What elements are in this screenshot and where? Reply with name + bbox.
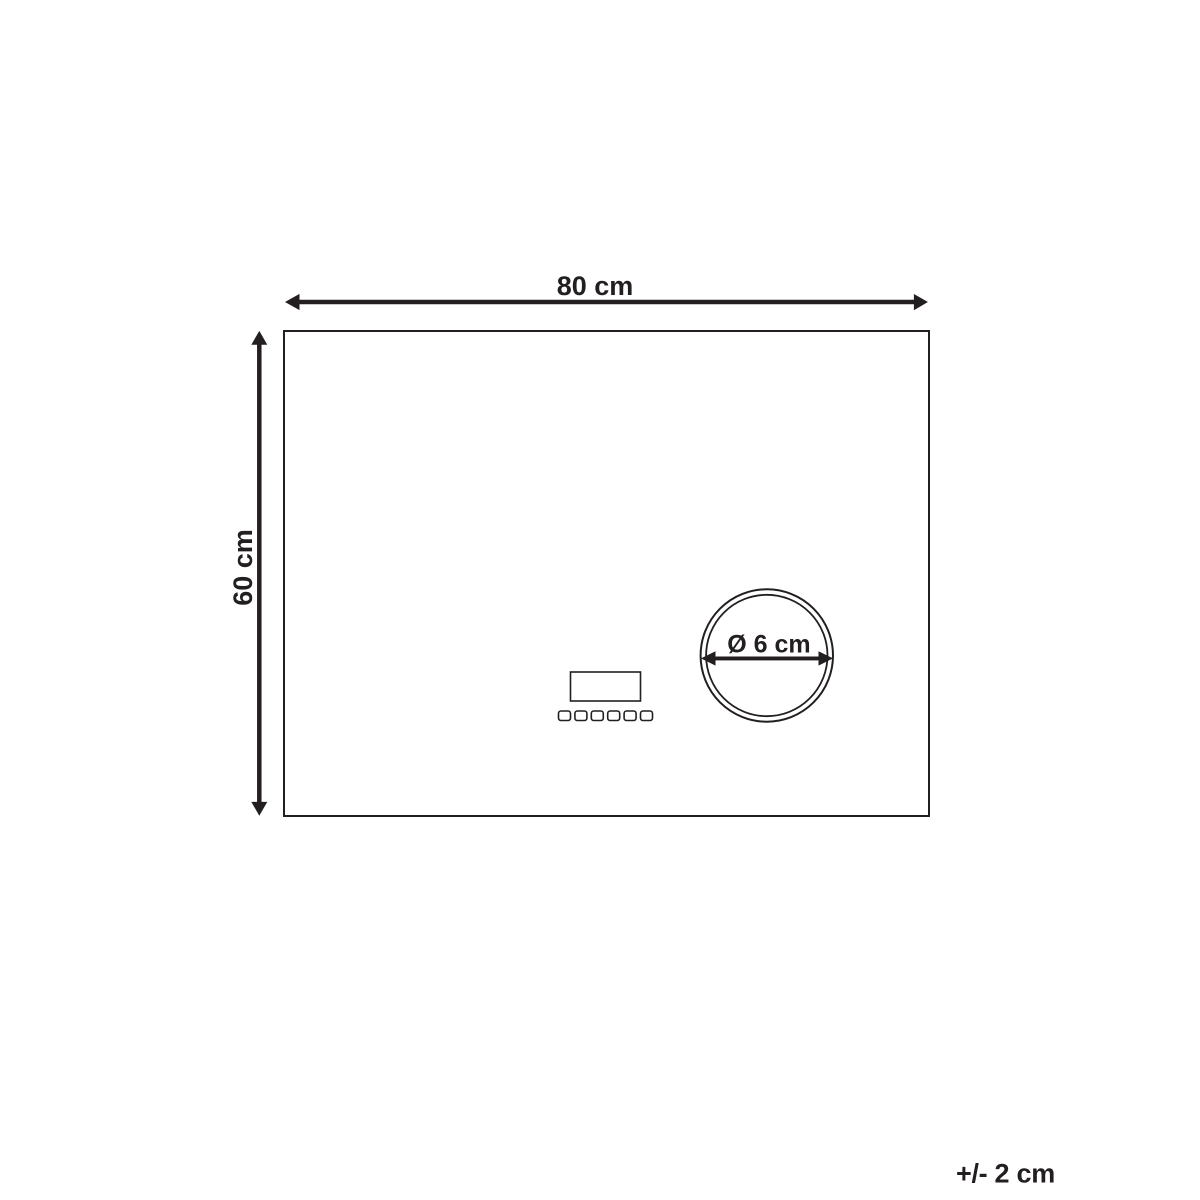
svg-text:60 cm: 60 cm [228,529,258,606]
svg-text:+/- 2 cm: +/- 2 cm [956,1158,1055,1188]
svg-text:Ø 6 cm: Ø 6 cm [727,631,810,659]
svg-text:80 cm: 80 cm [557,271,634,301]
